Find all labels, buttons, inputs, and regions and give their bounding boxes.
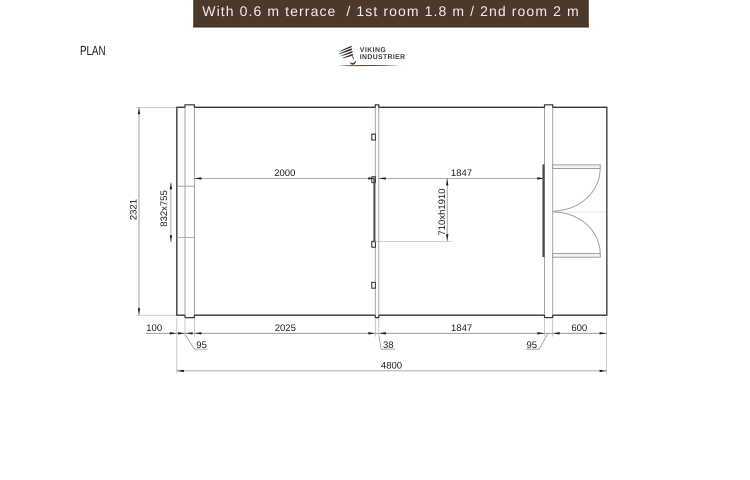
svg-text:2025: 2025 <box>275 323 296 334</box>
svg-text:95: 95 <box>196 340 207 351</box>
svg-text:INDUSTRIER: INDUSTRIER <box>360 54 406 61</box>
svg-text:2000: 2000 <box>274 168 295 179</box>
svg-text:100: 100 <box>146 323 162 334</box>
svg-text:38: 38 <box>383 340 394 351</box>
svg-text:832x755: 832x755 <box>159 190 170 226</box>
svg-text:VIKING: VIKING <box>360 47 386 54</box>
svg-text:710xh1910: 710xh1910 <box>437 188 448 235</box>
svg-text:1847: 1847 <box>451 323 472 334</box>
svg-text:With 0.6 m terrace / 1st room: With 0.6 m terrace / 1st room 1.8 m / 2n… <box>202 3 579 19</box>
svg-text:2321: 2321 <box>128 199 139 220</box>
svg-text:95: 95 <box>527 340 538 351</box>
svg-text:600: 600 <box>571 323 587 334</box>
svg-text:PLAN: PLAN <box>80 43 105 58</box>
svg-text:4800: 4800 <box>381 361 402 372</box>
svg-text:1847: 1847 <box>451 168 472 179</box>
